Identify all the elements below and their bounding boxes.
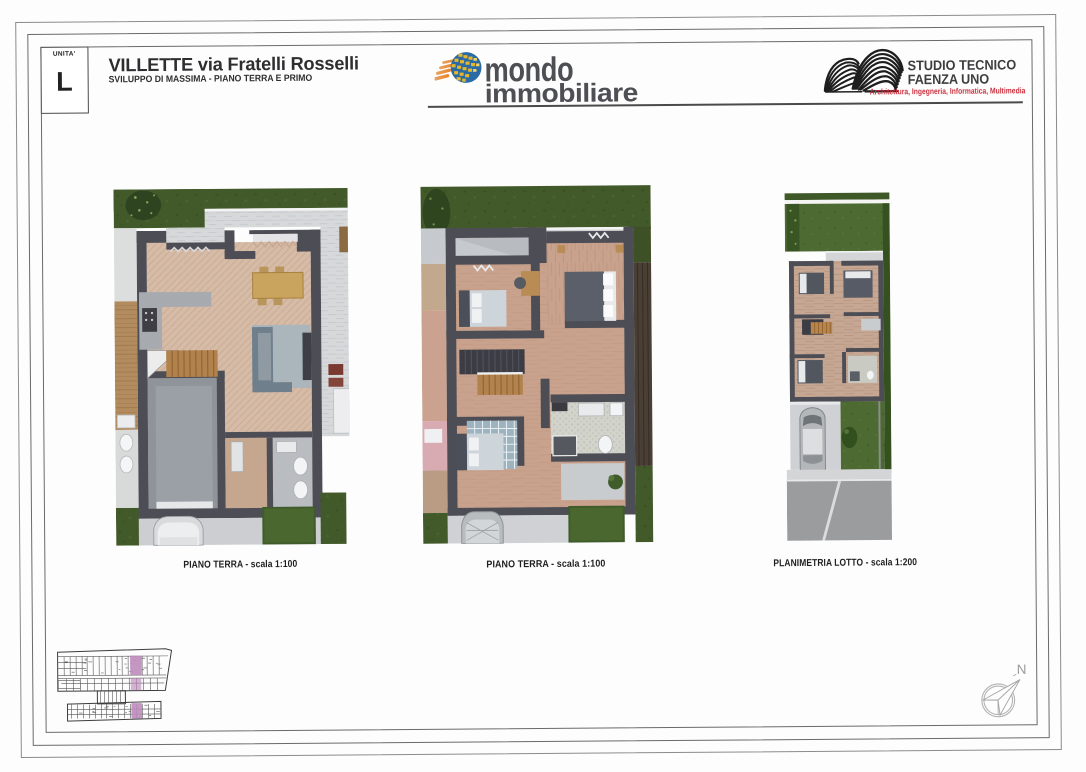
svg-text:N: N: [1017, 662, 1027, 677]
